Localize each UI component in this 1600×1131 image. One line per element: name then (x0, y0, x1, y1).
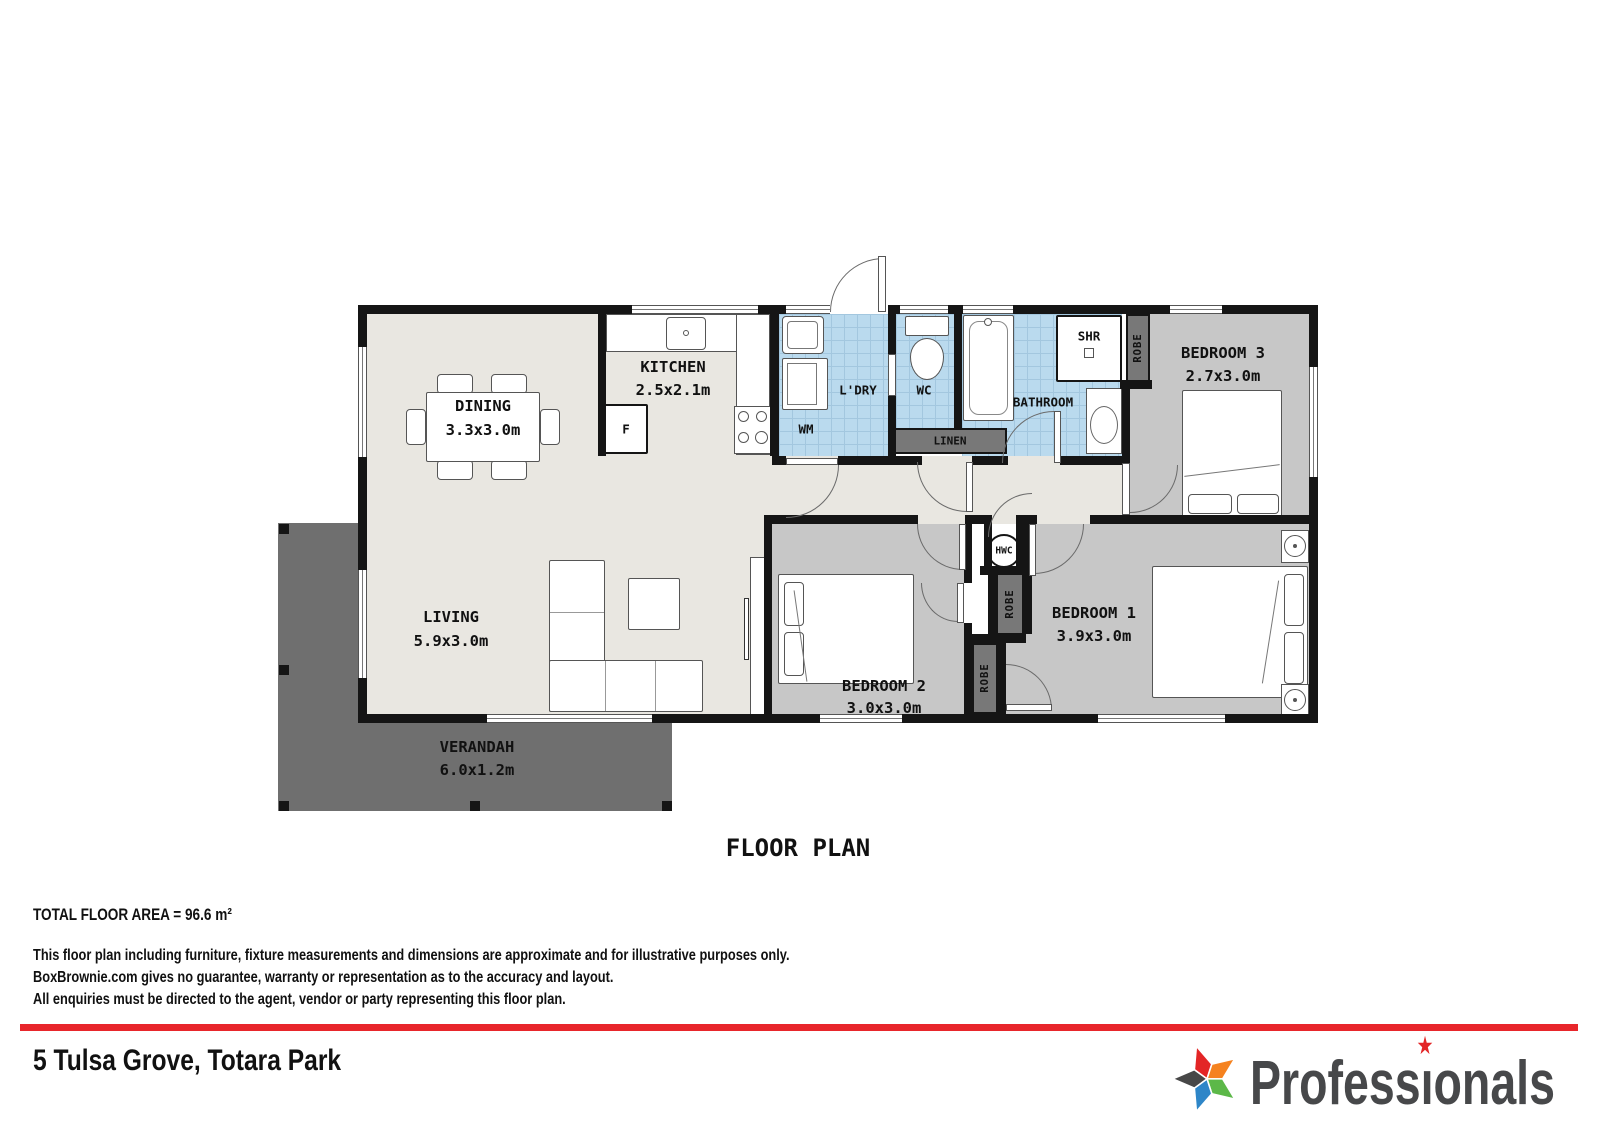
wall-segment (1309, 305, 1318, 367)
pillow (1237, 494, 1279, 514)
verandah-post (662, 801, 672, 811)
wall-segment (358, 457, 367, 570)
robe-label-bedroom3: ROBE (1132, 333, 1144, 362)
disclaimer: This floor plan including furniture, fix… (33, 945, 979, 1011)
entry-door-arc (830, 258, 884, 312)
bedroom1-label: BEDROOM 1 (1052, 604, 1136, 622)
disclaimer-line: All enquiries must be directed to the ag… (33, 989, 566, 1011)
dining-dims: 3.3x3.0m (446, 421, 521, 439)
pillow (1284, 574, 1304, 626)
dining-chair (540, 409, 560, 445)
kitchen-dims: 2.5x2.1m (636, 381, 711, 399)
disclaimer-line: BoxBrownie.com gives no guarantee, warra… (33, 967, 613, 989)
bedroom3-label: BEDROOM 3 (1181, 344, 1265, 362)
window (786, 305, 830, 314)
disclaimer-line: This floor plan including furniture, fix… (33, 945, 790, 967)
fridge-label: F (622, 422, 630, 437)
shower-drain (1084, 348, 1094, 358)
coffee-table (628, 578, 680, 630)
divider-line (20, 1024, 1578, 1031)
hwc-label: HWC (995, 546, 1012, 557)
wall-segment (358, 305, 632, 314)
window (900, 305, 948, 314)
wall-segment (770, 314, 779, 456)
toilet-cistern (905, 316, 949, 336)
window (1170, 305, 1222, 314)
pillow (1284, 632, 1304, 684)
dining-label: DINING (455, 397, 511, 415)
robe-label-bedroom1: ROBE (979, 663, 991, 692)
dining-chair (437, 374, 473, 394)
laundry-door-leaf (786, 458, 838, 465)
laundry-tub-basin (787, 321, 818, 349)
sofa-cushion-line (605, 661, 606, 711)
wall-segment (772, 456, 786, 465)
bedroom3-dims: 2.7x3.0m (1186, 367, 1261, 385)
wall-segment (964, 634, 1026, 643)
bedroom2-robe-door-leaf (957, 583, 964, 623)
wall-segment (888, 396, 896, 456)
laundry-label: L'DRY (839, 383, 877, 398)
living-dims: 5.9x3.0m (414, 632, 489, 650)
wall-segment (948, 305, 963, 314)
verandah-post (279, 801, 289, 811)
bathroom-door-leaf (1054, 411, 1061, 463)
linen-door-leaf (966, 462, 973, 512)
tv (744, 598, 749, 660)
wall-segment (888, 314, 896, 354)
wall-segment (1122, 389, 1130, 456)
wall-segment (838, 456, 893, 465)
dining-chair (406, 409, 426, 445)
bedroom1-door-leaf (1029, 524, 1036, 576)
verandah-dims: 6.0x1.2m (440, 761, 515, 779)
verandah-post (279, 665, 289, 675)
window (963, 305, 1013, 314)
wall-segment (1090, 515, 1318, 524)
shower-label: SHR (1078, 329, 1101, 344)
window (358, 570, 367, 678)
washing-machine-label: WM (798, 422, 813, 437)
wc-label: WC (916, 383, 931, 398)
burner (755, 431, 768, 444)
bedroom1-dims: 3.9x3.0m (1057, 627, 1132, 645)
dining-chair (491, 460, 527, 480)
bedroom2-door-leaf (959, 524, 966, 570)
window (632, 305, 758, 314)
linen-label: LINEN (933, 435, 966, 448)
bedroom2-label: BEDROOM 2 (842, 677, 926, 695)
bedroom3-door-leaf (1122, 463, 1130, 515)
verandah-label: VERANDAH (440, 738, 515, 756)
living-label: LIVING (423, 608, 479, 626)
wall-segment (954, 314, 962, 428)
professionals-star-icon (1168, 1036, 1246, 1114)
bathroom-label: BATHROOM (1013, 395, 1073, 410)
wall-segment (998, 643, 1006, 714)
fan-hub (1293, 544, 1297, 548)
professionals-logo-text: Professı★onals (1250, 1048, 1555, 1119)
wall-segment (652, 714, 820, 723)
bedroom1-robe-door-leaf (1006, 704, 1052, 711)
sink-drain (683, 330, 689, 336)
dining-chair (437, 460, 473, 480)
burner (738, 432, 749, 443)
floor-plan-title: FLOOR PLAN (726, 834, 871, 862)
dining-chair (491, 374, 527, 394)
burner (738, 411, 749, 422)
wall-segment (358, 714, 487, 723)
bathtub-inner (969, 321, 1008, 415)
wall-segment (758, 305, 786, 314)
fan-hub (1293, 698, 1297, 702)
kitchen-label: KITCHEN (640, 358, 705, 376)
wc-door-leaf (888, 354, 896, 396)
verandah-post (470, 801, 480, 811)
floor-plan-page: { "plan": { "title": "FLOOR PLAN", "room… (0, 0, 1600, 1131)
robe-label-bedroom2: ROBE (1004, 589, 1016, 618)
washing-machine-lid (787, 363, 817, 405)
wall-segment (964, 623, 972, 714)
pillow (1188, 494, 1232, 514)
property-address: 5 Tulsa Grove, Totara Park (33, 1044, 409, 1078)
wall-segment (988, 573, 996, 635)
window (1098, 714, 1225, 723)
wall-segment (1060, 456, 1130, 465)
wall-segment (1222, 305, 1318, 314)
entry-door-leaf (878, 256, 886, 312)
window (358, 347, 367, 457)
vanity-basin (1090, 406, 1118, 444)
sofa-cushion-line (550, 612, 604, 613)
wall-segment (1225, 714, 1318, 723)
wall-segment (764, 515, 772, 714)
burner (756, 411, 767, 422)
window (487, 714, 652, 723)
wall-segment (1120, 380, 1152, 389)
sofa (549, 660, 703, 712)
wall-segment (888, 305, 900, 314)
wall-segment (358, 305, 367, 347)
wall-segment (902, 714, 1098, 723)
verandah-post (279, 524, 289, 534)
total-floor-area: TOTAL FLOOR AREA = 96.6 m² (33, 905, 282, 925)
logo-i-star-icon: ★ (1418, 1033, 1433, 1059)
sofa-cushion-line (655, 661, 656, 711)
bedroom2-dims: 3.0x3.0m (847, 699, 922, 717)
window (1309, 367, 1318, 477)
wall-segment (598, 314, 606, 456)
pillow (784, 582, 804, 626)
wall-segment (1013, 305, 1170, 314)
bath-faucet (984, 318, 992, 326)
wall-segment (1309, 477, 1318, 723)
